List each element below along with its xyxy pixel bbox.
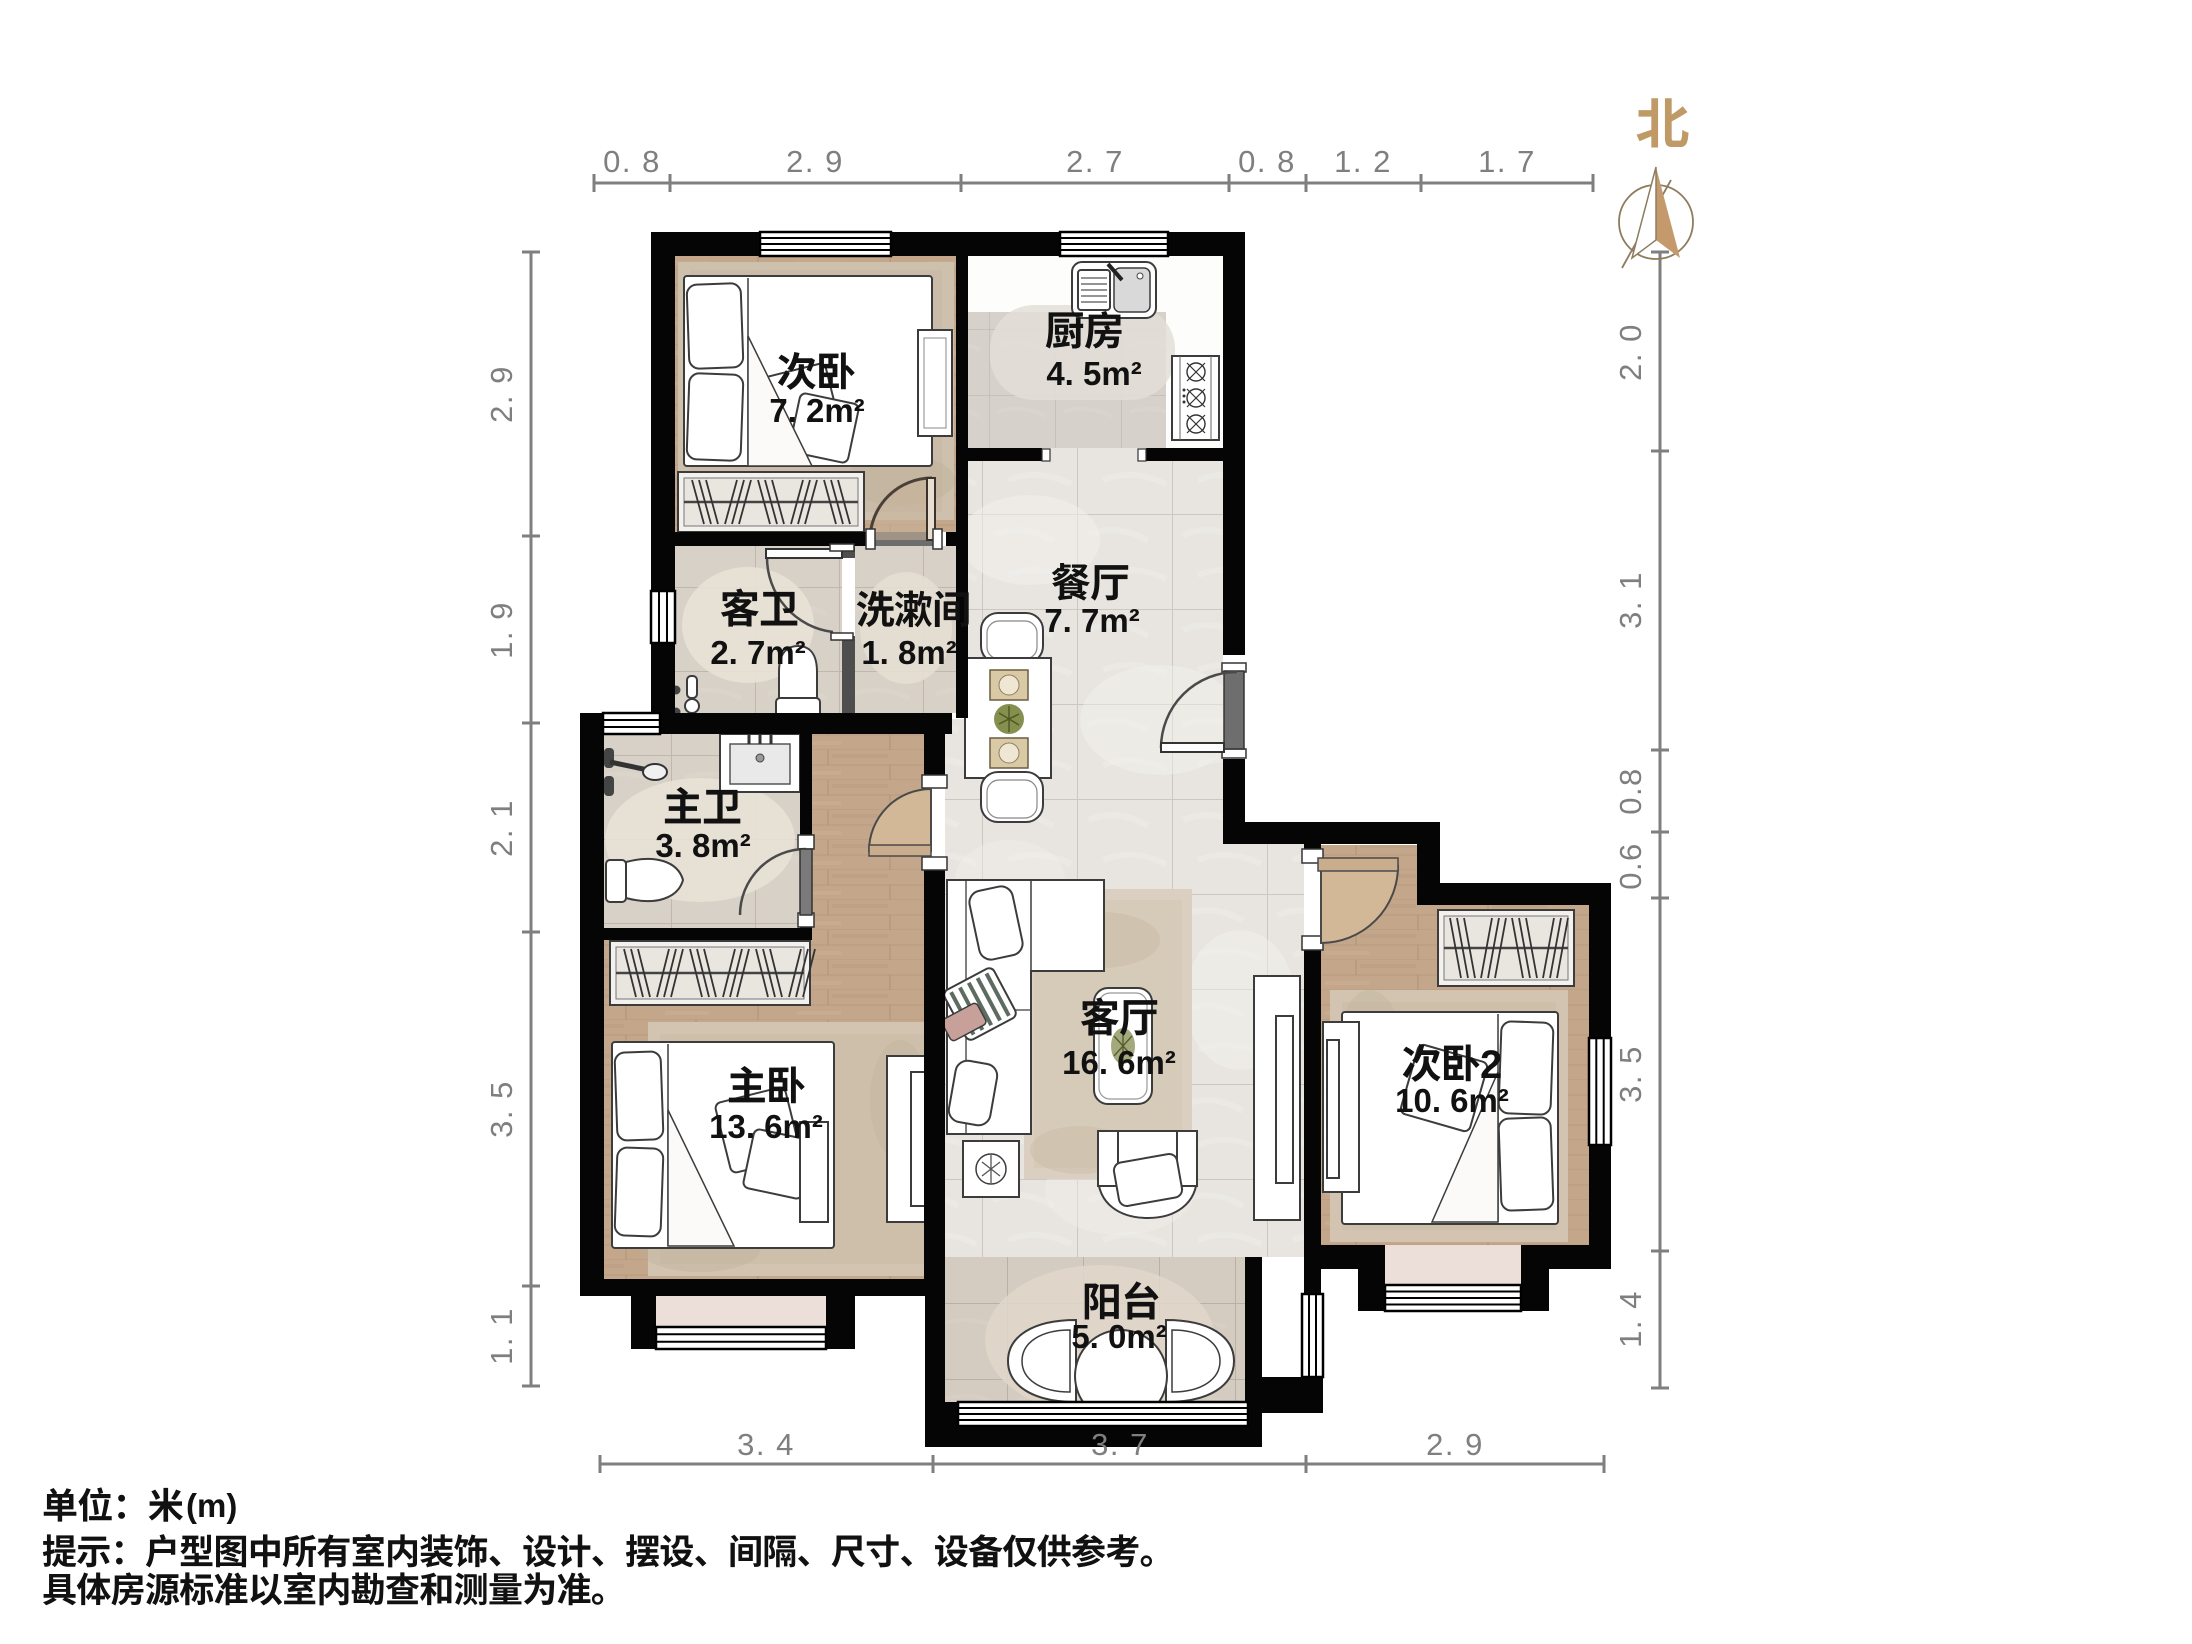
svg-text:2. 0: 2. 0 (1613, 323, 1648, 381)
svg-text:0.6: 0.6 (1613, 842, 1648, 890)
svg-text:13. 6m²: 13. 6m² (709, 1108, 823, 1145)
svg-text:1. 9: 1. 9 (484, 601, 519, 659)
svg-text:0. 8: 0. 8 (603, 144, 661, 179)
svg-text:2. 9: 2. 9 (786, 144, 844, 179)
svg-text:0.8: 0.8 (1613, 767, 1648, 815)
svg-text:10. 6m²: 10. 6m² (1395, 1082, 1509, 1119)
svg-text:0. 8: 0. 8 (1238, 144, 1296, 179)
svg-text:4. 5m²: 4. 5m² (1046, 355, 1141, 392)
svg-text:3. 1: 3. 1 (1613, 571, 1648, 629)
svg-text:1. 7: 1. 7 (1478, 144, 1536, 179)
svg-text:1. 2: 1. 2 (1334, 144, 1392, 179)
svg-text:3. 5: 3. 5 (1613, 1045, 1648, 1103)
svg-text:7. 2m²: 7. 2m² (769, 392, 864, 429)
svg-text:5. 0m²: 5. 0m² (1071, 1318, 1166, 1355)
svg-text:16. 6m²: 16. 6m² (1062, 1044, 1176, 1081)
svg-text:1. 1: 1. 1 (484, 1307, 519, 1365)
svg-text:2. 7m²: 2. 7m² (710, 634, 805, 671)
svg-text:2. 9: 2. 9 (1426, 1427, 1484, 1462)
svg-text:2. 1: 2. 1 (484, 799, 519, 857)
svg-text:2: 2 (1480, 1043, 1502, 1087)
svg-text:1. 8m²: 1. 8m² (861, 634, 956, 671)
svg-text:1. 4: 1. 4 (1613, 1290, 1648, 1348)
svg-text:3. 4: 3. 4 (737, 1427, 795, 1462)
svg-text:2. 7: 2. 7 (1066, 144, 1124, 179)
svg-text:3. 5: 3. 5 (484, 1080, 519, 1138)
svg-text:2. 9: 2. 9 (484, 365, 519, 423)
svg-text:7. 7m²: 7. 7m² (1044, 602, 1139, 639)
svg-text:3. 7: 3. 7 (1091, 1427, 1149, 1462)
svg-text:3. 8m²: 3. 8m² (655, 827, 750, 864)
svg-text:(m): (m) (186, 1487, 237, 1524)
